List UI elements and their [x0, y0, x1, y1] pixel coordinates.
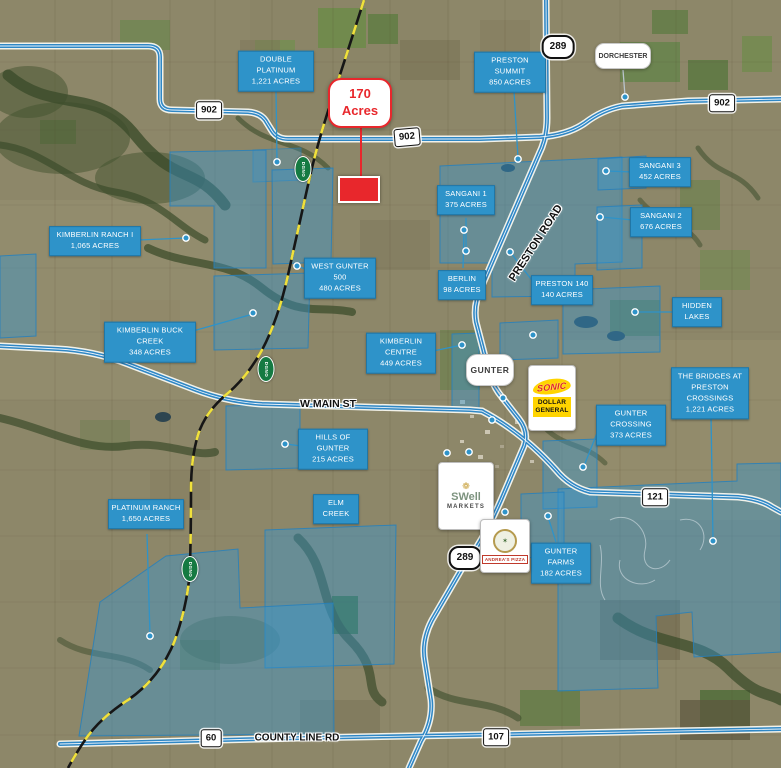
parcel-label-west-gunter-500: WEST GUNTER 500480 ACRES	[304, 258, 376, 299]
parcel-label-kimberlin-buck-creek: KIMBERLIN BUCK CREEK348 ACRES	[104, 322, 196, 363]
railroad-logo-center: DGNO	[258, 356, 275, 382]
highway-shield-60: 60	[201, 729, 222, 747]
sonic-logo: SONIC	[532, 377, 571, 396]
parcel-label-gunter-farms: GUNTER FARMS182 ACRES	[531, 543, 591, 584]
parcel-label-kimberlin-ranch-1: KIMBERLIN RANCH I1,065 ACRES	[49, 226, 141, 256]
town-callout-dorchester: DORCHESTER	[595, 43, 651, 69]
andreas-pizza-panel: ✶ ANDREA'S PIZZA	[480, 519, 530, 573]
parcel-label-platinum-ranch: PLATINUM RANCH1,650 ACRES	[108, 499, 184, 529]
road-label-county-line-rd: COUNTY LINE RD	[255, 733, 340, 744]
parcel-label-gunter-crossing: GUNTER CROSSING373 ACRES	[596, 405, 666, 446]
highway-shield-902-west: 902	[196, 101, 222, 119]
subject-parcel-170-acres	[338, 176, 380, 203]
subject-acreage-line1: 170	[330, 86, 390, 103]
parcel-label-berlin: BERLIN98 ACRES	[438, 270, 486, 300]
parcel-label-elm-creek: ELM CREEK	[313, 494, 359, 524]
highway-shield-107: 107	[483, 728, 509, 746]
andreas-pizza-badge-icon: ✶	[493, 529, 517, 553]
highway-shield-902-east: 902	[709, 94, 735, 112]
swell-markets-logo: SWell	[451, 491, 481, 503]
andreas-pizza-logo: ANDREA'S PIZZA	[482, 555, 528, 564]
parcel-label-double-platinum: DOUBLE PLATINUM1,221 ACRES	[238, 51, 314, 92]
parcel-label-bridges-preston-crossings: THE BRIDGES AT PRESTON CROSSINGS1,221 AC…	[671, 367, 749, 419]
highway-shield-289-north: 289	[542, 35, 575, 59]
road-label-w-main-st: W MAIN ST	[300, 398, 356, 410]
town-callout-gunter: GUNTER	[466, 354, 514, 386]
swell-flower-icon: ❁	[462, 482, 470, 491]
dollar-general-logo: DOLLAR GENERAL	[533, 397, 571, 417]
parcel-label-sangani-2: SANGANI 2676 ACRES	[630, 207, 692, 237]
parcel-label-preston-summit: PRESTON SUMMIT850 ACRES	[474, 52, 546, 93]
railroad-logo-north: DGNO	[295, 156, 312, 182]
railroad-logo-south: DGNO	[182, 556, 199, 582]
parcel-label-preston-140: PRESTON 140140 ACRES	[531, 275, 593, 305]
highway-shield-121: 121	[642, 488, 668, 506]
parcel-label-sangani-1: SANGANI 1375 ACRES	[437, 185, 495, 215]
subject-acreage-line2: Acres	[330, 103, 390, 120]
sonic-dollar-general-panel: SONIC DOLLAR GENERAL	[528, 365, 576, 431]
highway-shield-902-center: 902	[393, 127, 420, 147]
highway-shield-289-south: 289	[449, 546, 482, 570]
parcel-label-kimberlin-centre: KIMBERLIN CENTRE449 ACRES	[366, 333, 436, 374]
aerial-parcel-map: 170 Acres DOUBLE PLATINUM1,221 ACRES PRE…	[0, 0, 781, 768]
parcel-label-hidden-lakes: HIDDEN LAKES	[672, 297, 722, 327]
subject-callout-170-acres: 170 Acres	[328, 78, 392, 128]
parcel-label-sangani-3: SANGANI 3452 ACRES	[629, 157, 691, 187]
parcel-label-hills-of-gunter: HILLS OF GUNTER215 ACRES	[298, 429, 368, 470]
